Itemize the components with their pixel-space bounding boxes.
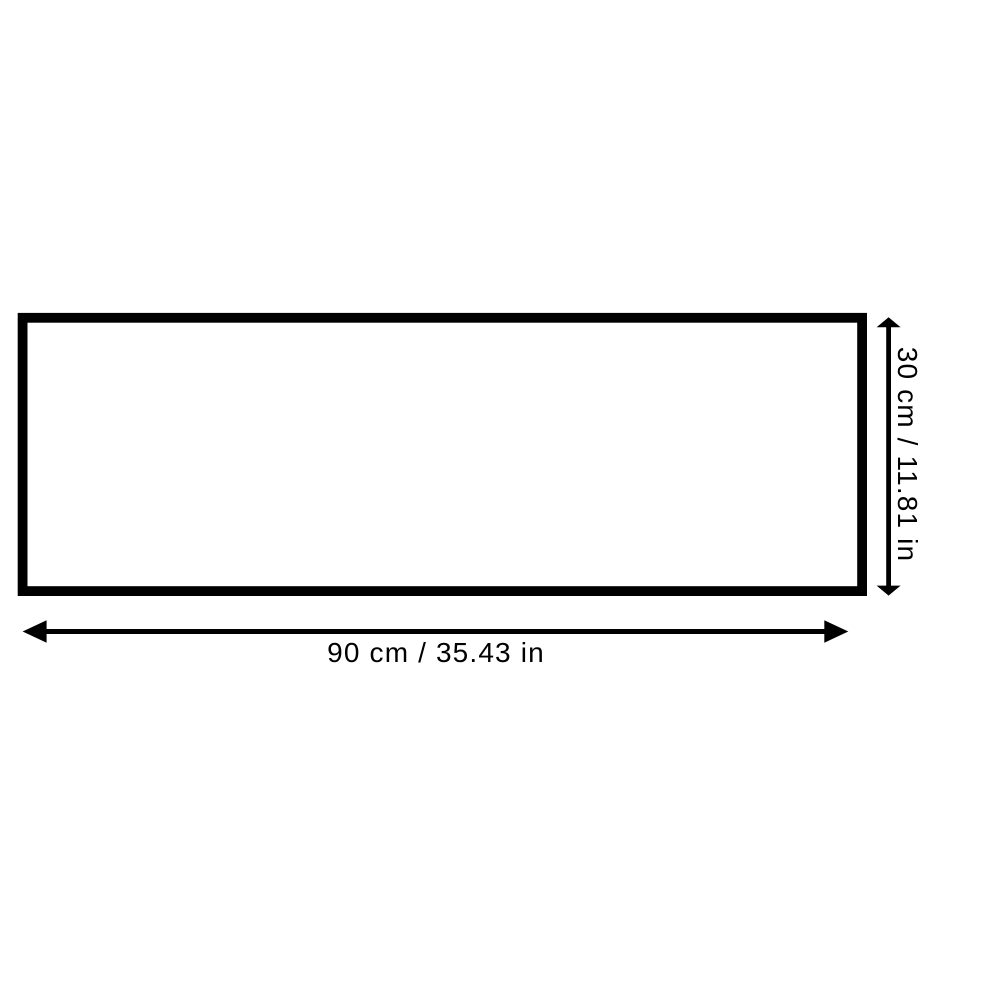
svg-text:90 cm / 35.43 in: 90 cm / 35.43 in xyxy=(327,637,545,668)
svg-text:30 cm / 11.81 in: 30 cm / 11.81 in xyxy=(892,347,923,563)
